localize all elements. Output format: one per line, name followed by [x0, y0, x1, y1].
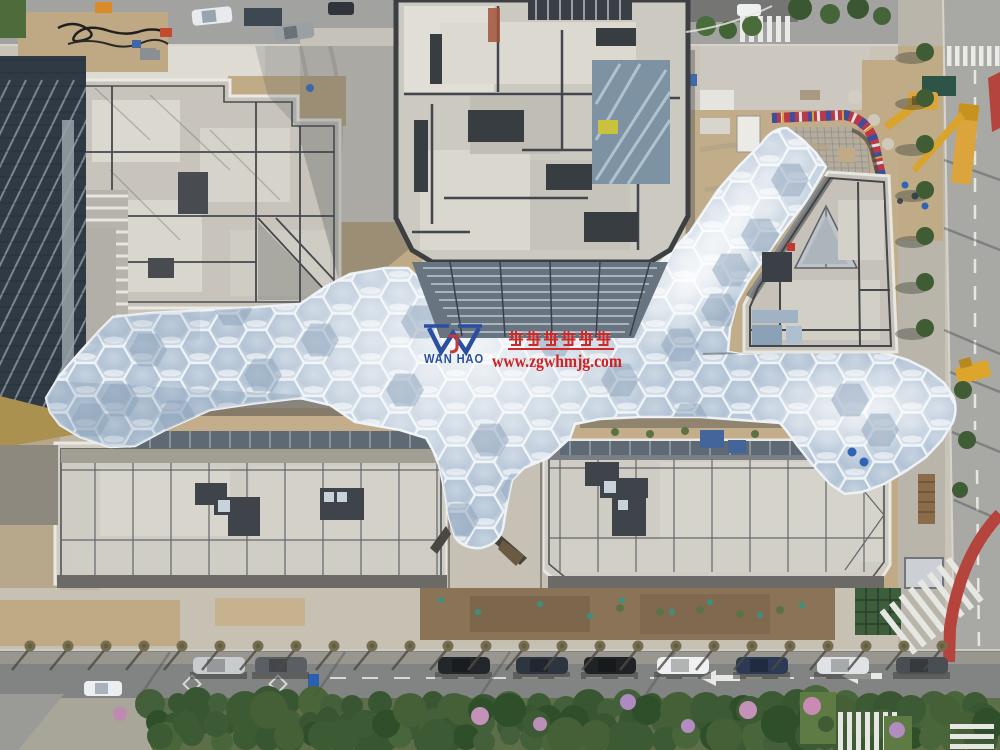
svg-text:WAN HAO: WAN HAO — [424, 352, 484, 366]
svg-text:www.zgwhmjg.com: www.zgwhmjg.com — [492, 351, 622, 371]
